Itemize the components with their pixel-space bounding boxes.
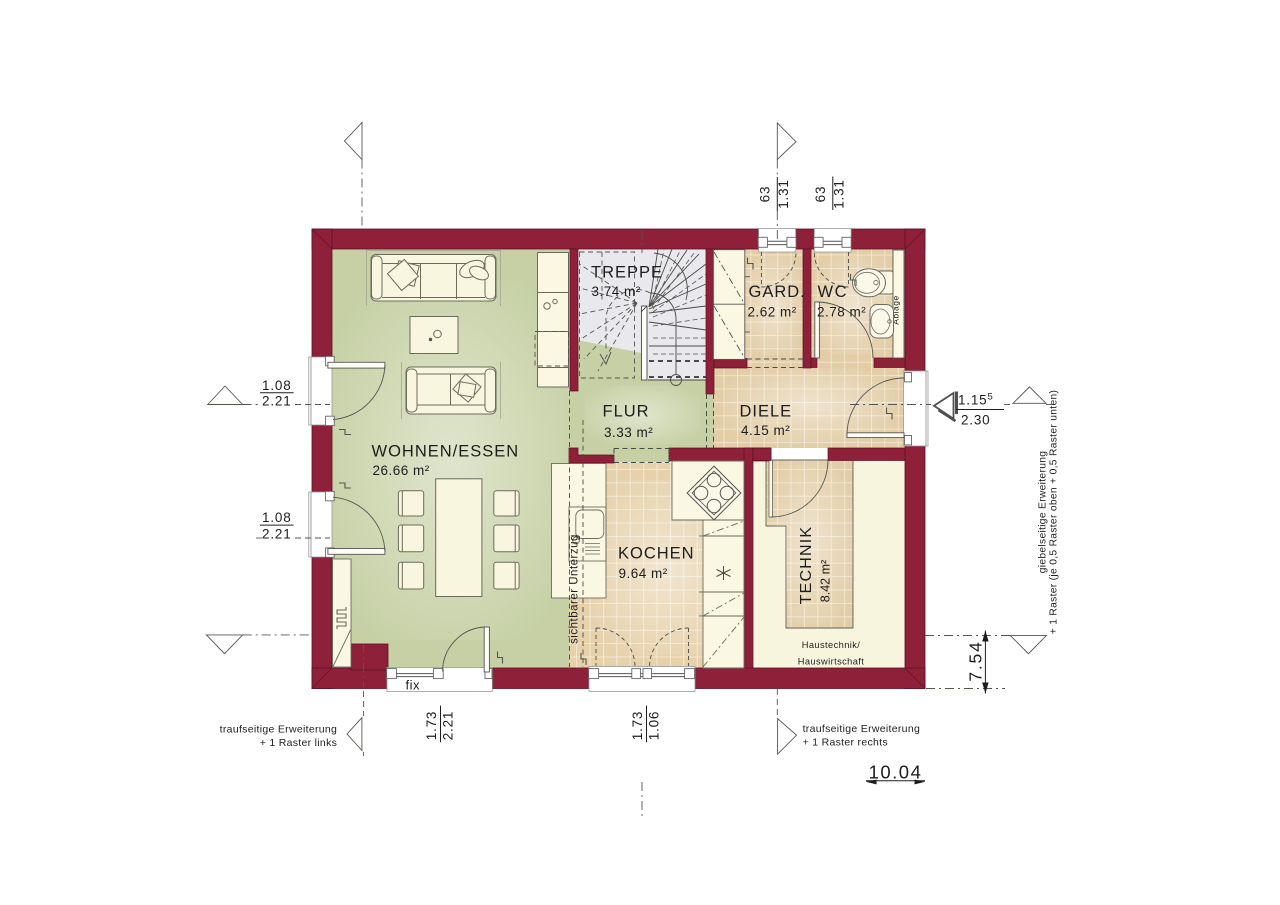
svg-text:+ 1 Raster rechts: + 1 Raster rechts	[803, 737, 888, 749]
svg-text:DIELE: DIELE	[740, 403, 793, 421]
svg-text:1.31: 1.31	[776, 179, 791, 208]
svg-text:+ 1 Raster (je 0,5 Raster oben: + 1 Raster (je 0,5 Raster oben + 0,5 Ras…	[1049, 390, 1060, 635]
svg-text:2.30: 2.30	[961, 413, 990, 428]
svg-text:2.21: 2.21	[262, 394, 291, 409]
svg-text:traufseitige Erweiterung: traufseitige Erweiterung	[220, 724, 338, 736]
svg-text:2.21: 2.21	[262, 527, 291, 542]
svg-text:1.06: 1.06	[647, 711, 662, 740]
svg-text:Haustechnik/: Haustechnik/	[802, 640, 861, 650]
svg-text:9.64 m²: 9.64 m²	[619, 566, 668, 581]
svg-text:10.04: 10.04	[869, 762, 923, 783]
svg-text:1.08: 1.08	[262, 378, 291, 393]
svg-text:26.66 m²: 26.66 m²	[373, 463, 430, 478]
svg-text:WC: WC	[818, 283, 849, 301]
svg-text:TECHNIK: TECHNIK	[798, 526, 815, 605]
svg-text:GARD.: GARD.	[749, 283, 806, 301]
svg-text:1.73: 1.73	[630, 711, 645, 740]
svg-text:1.73: 1.73	[424, 711, 439, 740]
svg-text:1.08: 1.08	[262, 510, 291, 525]
svg-text:2.62 m²: 2.62 m²	[748, 305, 797, 320]
svg-text:KOCHEN: KOCHEN	[618, 545, 695, 563]
svg-text:TREPPE: TREPPE	[591, 264, 663, 282]
svg-text:63: 63	[813, 186, 828, 203]
svg-text:sichtbarer Unterzug: sichtbarer Unterzug	[569, 534, 581, 644]
svg-text:2.21: 2.21	[441, 711, 456, 740]
svg-text:Hauswirtschaft: Hauswirtschaft	[798, 657, 865, 667]
svg-text:1.31: 1.31	[832, 179, 847, 208]
svg-text:4.15 m²: 4.15 m²	[741, 423, 790, 438]
svg-text:2.78 m²: 2.78 m²	[817, 305, 866, 320]
svg-text:+ 1 Raster links: + 1 Raster links	[260, 737, 337, 749]
svg-text:WOHNEN/ESSEN: WOHNEN/ESSEN	[372, 443, 520, 461]
svg-text:3.33 m²: 3.33 m²	[604, 425, 653, 440]
svg-text:fix: fix	[406, 678, 421, 693]
svg-text:giebelseitige Erweiterung: giebelseitige Erweiterung	[1038, 451, 1049, 574]
svg-text:traufseitige Erweiterung: traufseitige Erweiterung	[803, 723, 921, 735]
svg-text:FLUR: FLUR	[603, 403, 650, 421]
svg-text:63: 63	[758, 186, 773, 203]
svg-text:8.42 m²: 8.42 m²	[819, 560, 833, 602]
svg-text:7.54: 7.54	[966, 640, 986, 681]
svg-text:3.74 m²: 3.74 m²	[592, 284, 641, 299]
